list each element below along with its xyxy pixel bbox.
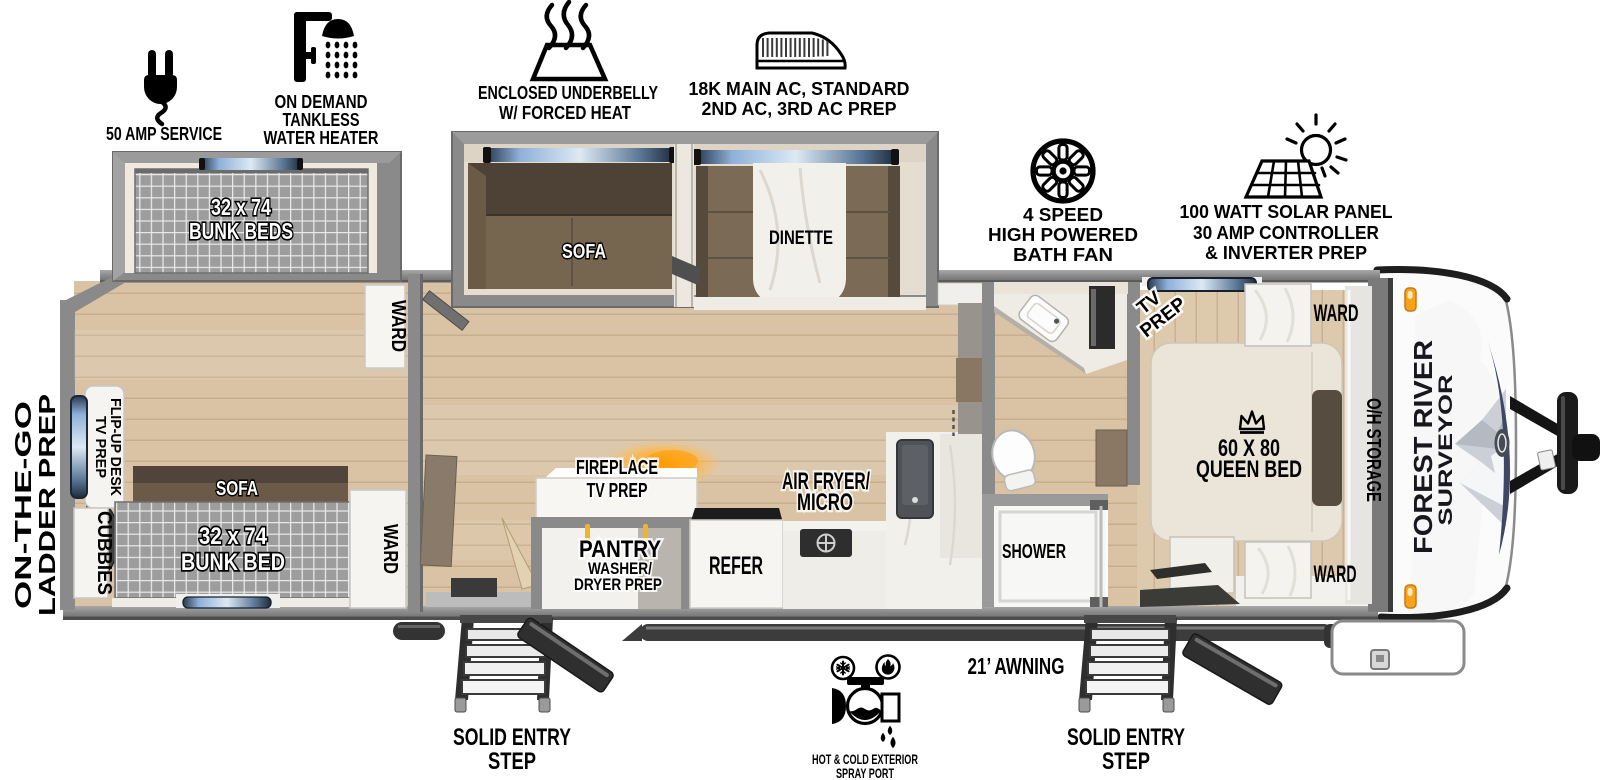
svg-text:FLIP-UP DESK: FLIP-UP DESK — [107, 398, 123, 497]
svg-text:50 AMP SERVICE: 50 AMP SERVICE — [106, 123, 222, 144]
svg-text:STEP: STEP — [1102, 748, 1150, 775]
svg-text:REFER: REFER — [709, 552, 763, 580]
svg-text:SOLID ENTRY: SOLID ENTRY — [453, 724, 571, 751]
svg-text:W/ FORCED HEAT: W/ FORCED HEAT — [499, 102, 632, 123]
svg-text:WATER HEATER: WATER HEATER — [264, 127, 379, 148]
svg-text:DINETTE: DINETTE — [769, 228, 833, 249]
svg-text:SOFA: SOFA — [216, 478, 258, 500]
svg-text:2ND AC, 3RD AC PREP: 2ND AC, 3RD AC PREP — [702, 98, 897, 119]
svg-text:SOLID ENTRY: SOLID ENTRY — [1067, 724, 1185, 751]
svg-text:BATH FAN: BATH FAN — [1013, 244, 1113, 265]
svg-text:& INVERTER PREP: & INVERTER PREP — [1205, 242, 1367, 263]
svg-text:32 x 74: 32 x 74 — [211, 194, 271, 220]
svg-text:WARD: WARD — [379, 524, 401, 574]
svg-text:BUNK BEDS: BUNK BEDS — [189, 218, 293, 244]
svg-text:WARD: WARD — [387, 300, 409, 352]
svg-text:CUBBIES: CUBBIES — [93, 511, 115, 595]
svg-text:QUEEN BED: QUEEN BED — [1196, 456, 1302, 483]
svg-text:SOFA: SOFA — [562, 241, 606, 263]
svg-text:SURVEYOR: SURVEYOR — [1436, 374, 1457, 525]
svg-text:ENCLOSED UNDERBELLY: ENCLOSED UNDERBELLY — [478, 82, 659, 103]
svg-text:BUNK BED: BUNK BED — [181, 549, 285, 576]
svg-text:O/H STORAGE: O/H STORAGE — [1362, 398, 1384, 502]
svg-text:18K MAIN AC, STANDARD: 18K MAIN AC, STANDARD — [689, 78, 910, 99]
svg-text:ON-THE-GO: ON-THE-GO — [10, 401, 36, 609]
svg-text:TV PREP: TV PREP — [587, 480, 648, 502]
svg-text:30 AMP CONTROLLER: 30 AMP CONTROLLER — [1193, 222, 1379, 243]
svg-text:21’ AWNING: 21’ AWNING — [968, 653, 1065, 679]
svg-text:WARD: WARD — [1314, 561, 1357, 588]
svg-text:32 x 74: 32 x 74 — [199, 523, 268, 550]
svg-text:STEP: STEP — [488, 748, 536, 775]
svg-text:MICRO: MICRO — [797, 489, 853, 516]
svg-text:SHOWER: SHOWER — [1002, 541, 1066, 563]
svg-text:WARD: WARD — [1314, 300, 1359, 327]
svg-text:HIGH POWERED: HIGH POWERED — [988, 224, 1138, 245]
svg-text:LADDER PREP: LADDER PREP — [34, 394, 60, 616]
svg-text:SPRAY PORT: SPRAY PORT — [836, 765, 894, 780]
svg-text:FOREST RIVER: FOREST RIVER — [1408, 340, 1438, 554]
svg-text:100 WATT SOLAR PANEL: 100 WATT SOLAR PANEL — [1180, 201, 1393, 222]
svg-text:DRYER PREP: DRYER PREP — [574, 576, 662, 594]
svg-text:TV PREP: TV PREP — [92, 416, 108, 478]
svg-text:FIREPLACE: FIREPLACE — [576, 457, 658, 479]
svg-text:4 SPEED: 4 SPEED — [1023, 204, 1103, 225]
svg-text:PANTRY: PANTRY — [579, 536, 661, 563]
